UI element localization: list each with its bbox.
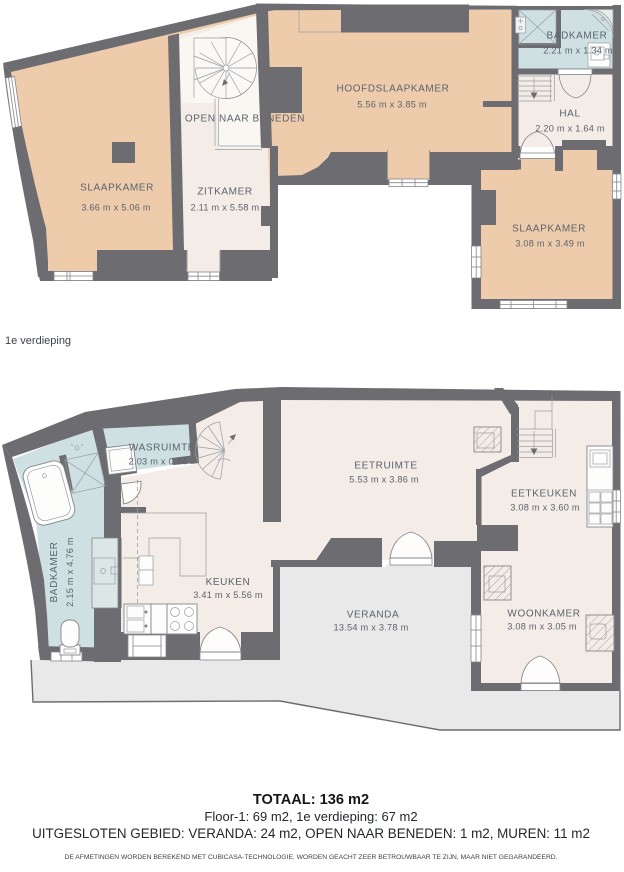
svg-text:EETRUIMTE: EETRUIMTE — [354, 461, 417, 472]
svg-text:2.11 m x 5.58 m: 2.11 m x 5.58 m — [191, 203, 260, 213]
svg-text:3.08 m x 3.05 m: 3.08 m x 3.05 m — [507, 622, 577, 632]
svg-text:5.56 m x 3.85 m: 5.56 m x 3.85 m — [357, 100, 427, 110]
svg-text:3.41 m x 5.56 m: 3.41 m x 5.56 m — [193, 590, 263, 600]
svg-text:ZITKAMER: ZITKAMER — [197, 187, 252, 198]
svg-text:SLAAPKAMER: SLAAPKAMER — [80, 183, 154, 194]
svg-text:1e verdieping: 1e verdieping — [5, 335, 71, 347]
svg-text:BADKAMER: BADKAMER — [49, 542, 60, 603]
svg-text:UITGESLOTEN GEBIED: VERANDA: 2: UITGESLOTEN GEBIED: VERANDA: 24 m2, OPEN… — [32, 826, 590, 841]
svg-text:OPEN NAAR BENEDEN: OPEN NAAR BENEDEN — [185, 114, 305, 125]
svg-text:WOONKAMER: WOONKAMER — [507, 609, 580, 620]
svg-text:2.21 m x 1.34 m: 2.21 m x 1.34 m — [543, 46, 613, 56]
svg-text:HOOFDSLAAPKAMER: HOOFDSLAAPKAMER — [337, 84, 450, 95]
svg-text:3.66 m x 5.06 m: 3.66 m x 5.06 m — [81, 203, 151, 213]
svg-text:13.54 m x 3.78 m: 13.54 m x 3.78 m — [334, 623, 409, 633]
svg-text:SLAAPKAMER: SLAAPKAMER — [512, 224, 586, 235]
svg-text:3.08 m x 3.60 m: 3.08 m x 3.60 m — [510, 503, 580, 513]
svg-text:DE AFMETINGEN WORDEN BEREKEND: DE AFMETINGEN WORDEN BEREKEND MET CUBICA… — [65, 854, 558, 861]
svg-text:2.15 m x 4.76 m: 2.15 m x 4.76 m — [65, 537, 75, 607]
svg-text:VERANDA: VERANDA — [347, 610, 400, 621]
svg-text:BADKAMER: BADKAMER — [547, 31, 608, 42]
svg-text:KEUKEN: KEUKEN — [206, 577, 251, 588]
svg-text:5.53 m x 3.86 m: 5.53 m x 3.86 m — [349, 475, 419, 485]
svg-text:2.03 m x 0.74: 2.03 m x 0.74 — [129, 457, 188, 467]
svg-text:3.08 m x 3.49 m: 3.08 m x 3.49 m — [515, 239, 585, 249]
svg-text:WASRUIMTE: WASRUIMTE — [129, 443, 195, 454]
svg-text:HAL: HAL — [559, 109, 580, 120]
svg-text:Floor-1: 69 m2, 1e verdieping:: Floor-1: 69 m2, 1e verdieping: 67 m2 — [204, 809, 417, 824]
svg-text:2.20 m x 1.64 m: 2.20 m x 1.64 m — [535, 124, 605, 134]
svg-text:TOTAAL: 136 m2: TOTAAL: 136 m2 — [253, 792, 369, 808]
svg-text:EETKEUKEN: EETKEUKEN — [511, 489, 577, 500]
